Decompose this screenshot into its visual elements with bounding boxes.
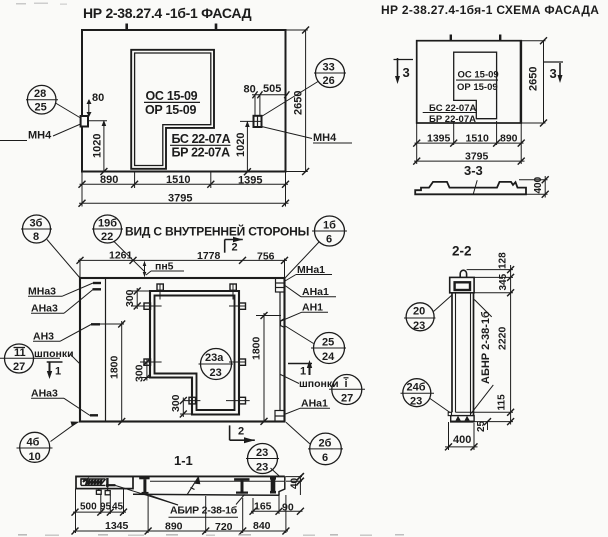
svg-text:ВИД С ВНУТРЕННЕЙ СТОРОНЫ: ВИД С ВНУТРЕННЕЙ СТОРОНЫ (125, 224, 309, 239)
svg-text:ОР 15-09: ОР 15-09 (145, 103, 196, 117)
svg-text:3-3: 3-3 (464, 163, 483, 178)
svg-text:890: 890 (165, 521, 183, 533)
svg-text:345: 345 (498, 273, 509, 290)
svg-text:95: 95 (100, 502, 112, 513)
svg-text:1778: 1778 (197, 250, 221, 262)
svg-text:300: 300 (124, 289, 136, 307)
svg-text:i: i (345, 378, 348, 390)
svg-text:4б: 4б (27, 437, 40, 449)
svg-text:НР 2-38.27.4 -1б-1 ФАСАД: НР 2-38.27.4 -1б-1 ФАСАД (83, 5, 252, 21)
svg-text:3: 3 (550, 66, 557, 81)
svg-text:1020: 1020 (92, 134, 104, 158)
svg-text:БС 22-07А: БС 22-07А (172, 132, 231, 146)
svg-text:1395: 1395 (238, 175, 262, 187)
svg-text:6: 6 (322, 452, 328, 464)
svg-text:890: 890 (500, 133, 518, 145)
svg-text:6: 6 (326, 234, 332, 246)
svg-text:23: 23 (256, 447, 268, 459)
svg-text:МН4: МН4 (28, 130, 52, 142)
svg-text:23: 23 (410, 396, 422, 408)
svg-text:АБНР 2-38-1б: АБНР 2-38-1б (480, 311, 492, 384)
svg-text:27: 27 (13, 361, 25, 373)
svg-text:720: 720 (215, 521, 233, 533)
svg-text:АБИР 2-38-1б: АБИР 2-38-1б (170, 505, 238, 517)
svg-text:1800: 1800 (251, 336, 263, 360)
svg-text:МН4: МН4 (313, 132, 337, 144)
svg-text:АН3: АН3 (33, 331, 54, 343)
svg-text:3б: 3б (30, 218, 43, 230)
svg-text:24: 24 (322, 351, 335, 363)
svg-text:шпонки: шпонки (34, 348, 74, 360)
svg-text:1510: 1510 (466, 133, 490, 145)
svg-text:27: 27 (341, 393, 353, 405)
svg-text:1800: 1800 (109, 355, 121, 379)
svg-text:1345: 1345 (105, 520, 129, 532)
svg-text:400: 400 (453, 434, 471, 446)
svg-text:2: 2 (232, 242, 238, 254)
svg-text:3795: 3795 (465, 151, 489, 163)
svg-text:1261: 1261 (109, 250, 133, 262)
svg-text:500: 500 (80, 502, 97, 513)
svg-text:АН1: АН1 (302, 302, 323, 314)
svg-text:24б: 24б (407, 382, 426, 394)
svg-text:840: 840 (253, 520, 271, 532)
svg-text:23а: 23а (205, 352, 224, 364)
svg-text:20: 20 (413, 306, 425, 318)
svg-text:40: 40 (290, 477, 301, 489)
svg-text:28: 28 (34, 88, 46, 100)
svg-text:23: 23 (256, 462, 268, 474)
svg-text:1-1: 1-1 (174, 453, 193, 468)
svg-text:45: 45 (112, 502, 124, 513)
svg-text:1510: 1510 (166, 174, 190, 186)
svg-text:3: 3 (403, 65, 410, 80)
svg-text:890: 890 (100, 174, 118, 186)
svg-text:2650: 2650 (528, 67, 540, 91)
svg-text:25: 25 (322, 337, 334, 349)
svg-text:АНа1: АНа1 (301, 398, 328, 410)
svg-text:165: 165 (254, 501, 272, 513)
svg-text:128: 128 (498, 252, 509, 269)
svg-text:2б: 2б (319, 437, 332, 449)
svg-text:БР 22-07А: БР 22-07А (429, 114, 476, 125)
svg-text:300: 300 (134, 364, 146, 382)
svg-text:АНа3: АНа3 (31, 303, 58, 315)
svg-text:БР 22-07А: БР 22-07А (172, 146, 231, 160)
svg-text:1: 1 (55, 366, 61, 378)
svg-text:ОР 15-09: ОР 15-09 (457, 82, 498, 93)
svg-text:2-2: 2-2 (452, 244, 472, 259)
svg-text:1б: 1б (323, 220, 336, 232)
svg-text:2220: 2220 (497, 326, 509, 350)
svg-text:80: 80 (92, 92, 104, 104)
svg-text:1: 1 (300, 366, 306, 378)
svg-text:19б: 19б (98, 218, 117, 230)
svg-text:33: 33 (323, 62, 335, 74)
svg-text:25: 25 (476, 420, 487, 432)
svg-text:3795: 3795 (168, 193, 192, 205)
svg-text:80: 80 (244, 84, 256, 96)
svg-text:115: 115 (497, 394, 508, 411)
svg-text:1395: 1395 (427, 133, 451, 145)
svg-text:400: 400 (533, 176, 544, 193)
svg-text:АНа3: АНа3 (31, 388, 58, 400)
svg-text:2: 2 (238, 426, 244, 438)
svg-text:26: 26 (323, 75, 335, 87)
svg-text:ОС 15-09: ОС 15-09 (146, 89, 198, 103)
svg-text:505: 505 (263, 83, 281, 95)
svg-text:8: 8 (33, 231, 39, 243)
svg-text:НР 2-38.27.4-1бя-1 СХЕМА ФАСАД: НР 2-38.27.4-1бя-1 СХЕМА ФАСАДА (381, 3, 599, 17)
svg-text:25: 25 (35, 102, 47, 114)
svg-text:МНа3: МНа3 (28, 286, 56, 298)
svg-text:11: 11 (14, 347, 26, 359)
svg-text:ОС 15-09: ОС 15-09 (458, 70, 499, 81)
svg-text:756: 756 (257, 251, 275, 263)
svg-text:23: 23 (413, 320, 425, 332)
svg-text:300: 300 (170, 394, 182, 412)
svg-text:22: 22 (101, 231, 113, 243)
svg-text:90: 90 (282, 502, 294, 514)
svg-text:10: 10 (29, 451, 41, 463)
svg-text:АНа1: АНа1 (302, 286, 329, 298)
svg-text:23: 23 (210, 367, 222, 379)
svg-text:1020: 1020 (235, 133, 247, 157)
svg-text:2650: 2650 (293, 91, 305, 115)
